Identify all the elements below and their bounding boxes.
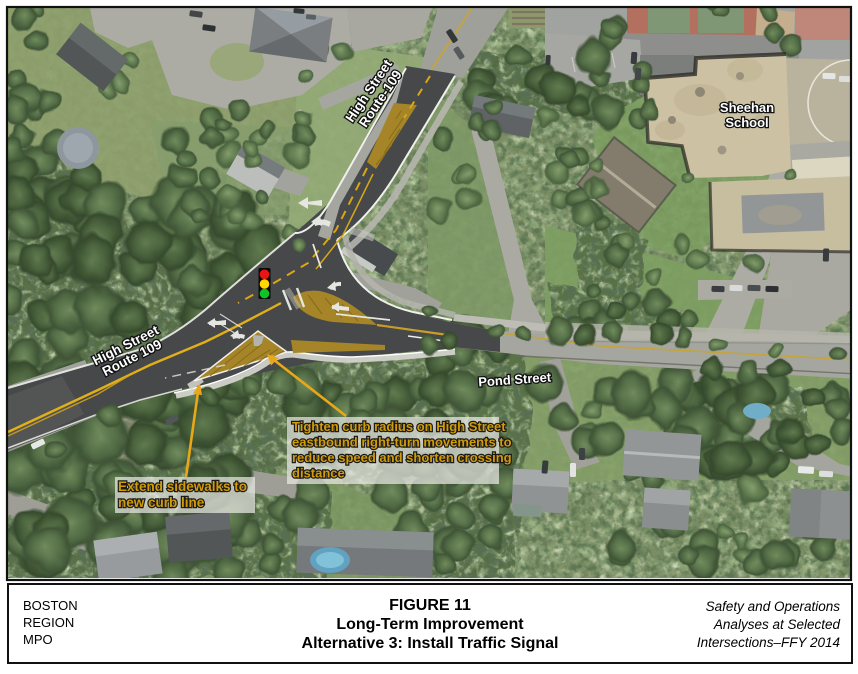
svg-text:eastbound right-turn movements: eastbound right-turn movements to [292, 435, 512, 450]
svg-text:Tighten curb radius on High St: Tighten curb radius on High Street [292, 419, 506, 434]
svg-text:Sheehan: Sheehan [720, 100, 774, 115]
svg-text:new curb line: new curb line [118, 495, 205, 510]
svg-text:distance: distance [292, 466, 345, 481]
svg-text:MPO: MPO [23, 632, 53, 647]
svg-text:Analyses at Selected: Analyses at Selected [713, 617, 841, 632]
svg-text:Extend sidewalks to: Extend sidewalks to [118, 479, 247, 494]
svg-text:BOSTON: BOSTON [23, 598, 78, 613]
svg-text:Safety and Operations: Safety and Operations [706, 599, 841, 614]
svg-text:REGION: REGION [23, 615, 74, 630]
svg-text:reduce speed and shorten cross: reduce speed and shorten crossing [292, 450, 512, 465]
svg-text:FIGURE 11: FIGURE 11 [389, 597, 471, 614]
svg-text:Long-Term Improvement: Long-Term Improvement [336, 616, 524, 633]
svg-text:School: School [725, 115, 768, 130]
svg-text:Alternative 3: Install Traffic: Alternative 3: Install Traffic Signal [302, 635, 559, 652]
svg-text:Intersections–FFY 2014: Intersections–FFY 2014 [697, 635, 840, 650]
